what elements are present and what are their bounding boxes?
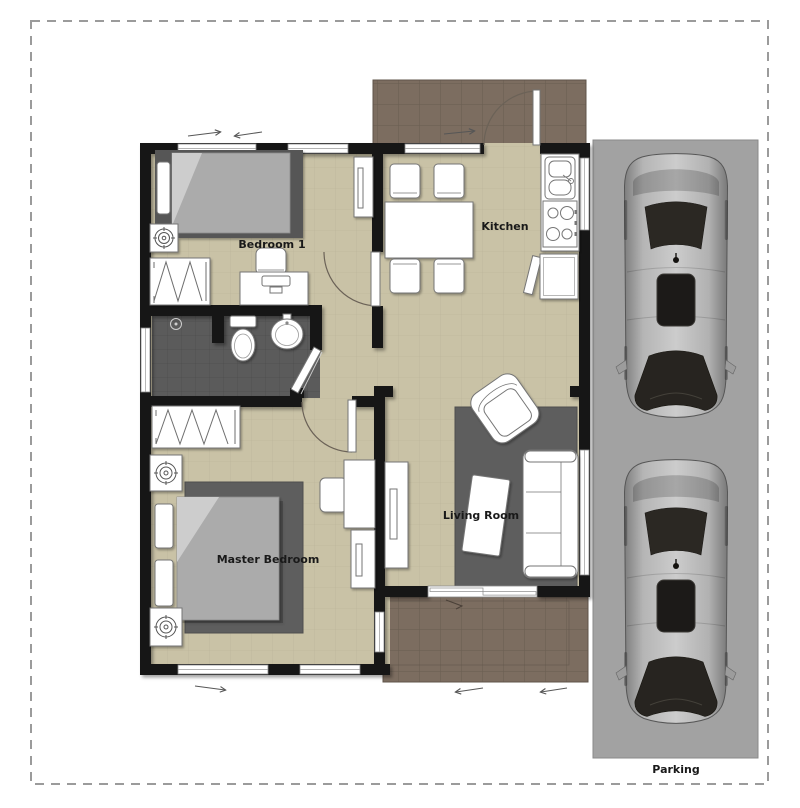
dresser [351, 530, 375, 588]
floor-plan-drawing: Bedroom 1 Kitchen Master Bedroom Living … [0, 0, 800, 808]
kitchen-sink [545, 157, 575, 199]
window [580, 450, 589, 575]
tv-cabinet [385, 462, 408, 568]
refrigerator [524, 254, 578, 299]
parking-area [593, 140, 758, 758]
sliding-door [428, 586, 537, 597]
car-bottom [616, 460, 736, 724]
wardrobe [150, 258, 210, 305]
floor-plan-canvas: Bedroom 1 Kitchen Master Bedroom Living … [0, 0, 800, 808]
rear-patio [383, 597, 588, 682]
master-bedroom-label: Master Bedroom [217, 553, 320, 566]
nightstand [150, 455, 182, 491]
window [178, 665, 268, 674]
entrance-patio [373, 80, 586, 146]
wall-shelf [354, 157, 373, 217]
wardrobe [152, 406, 240, 448]
living-room-label: Living Room [443, 509, 519, 522]
window [141, 328, 150, 392]
stove [543, 201, 578, 247]
sofa [523, 450, 578, 578]
nightstand [150, 224, 178, 252]
toilet [230, 316, 256, 361]
car-top [616, 154, 736, 418]
window [405, 144, 480, 153]
kitchen-counter [541, 154, 579, 251]
nightstand [150, 608, 182, 646]
kitchen-label: Kitchen [481, 220, 528, 233]
window [580, 158, 589, 230]
parking-label: Parking [652, 763, 699, 776]
bedroom1-label: Bedroom 1 [238, 238, 305, 251]
window [300, 665, 360, 674]
window [375, 612, 384, 652]
